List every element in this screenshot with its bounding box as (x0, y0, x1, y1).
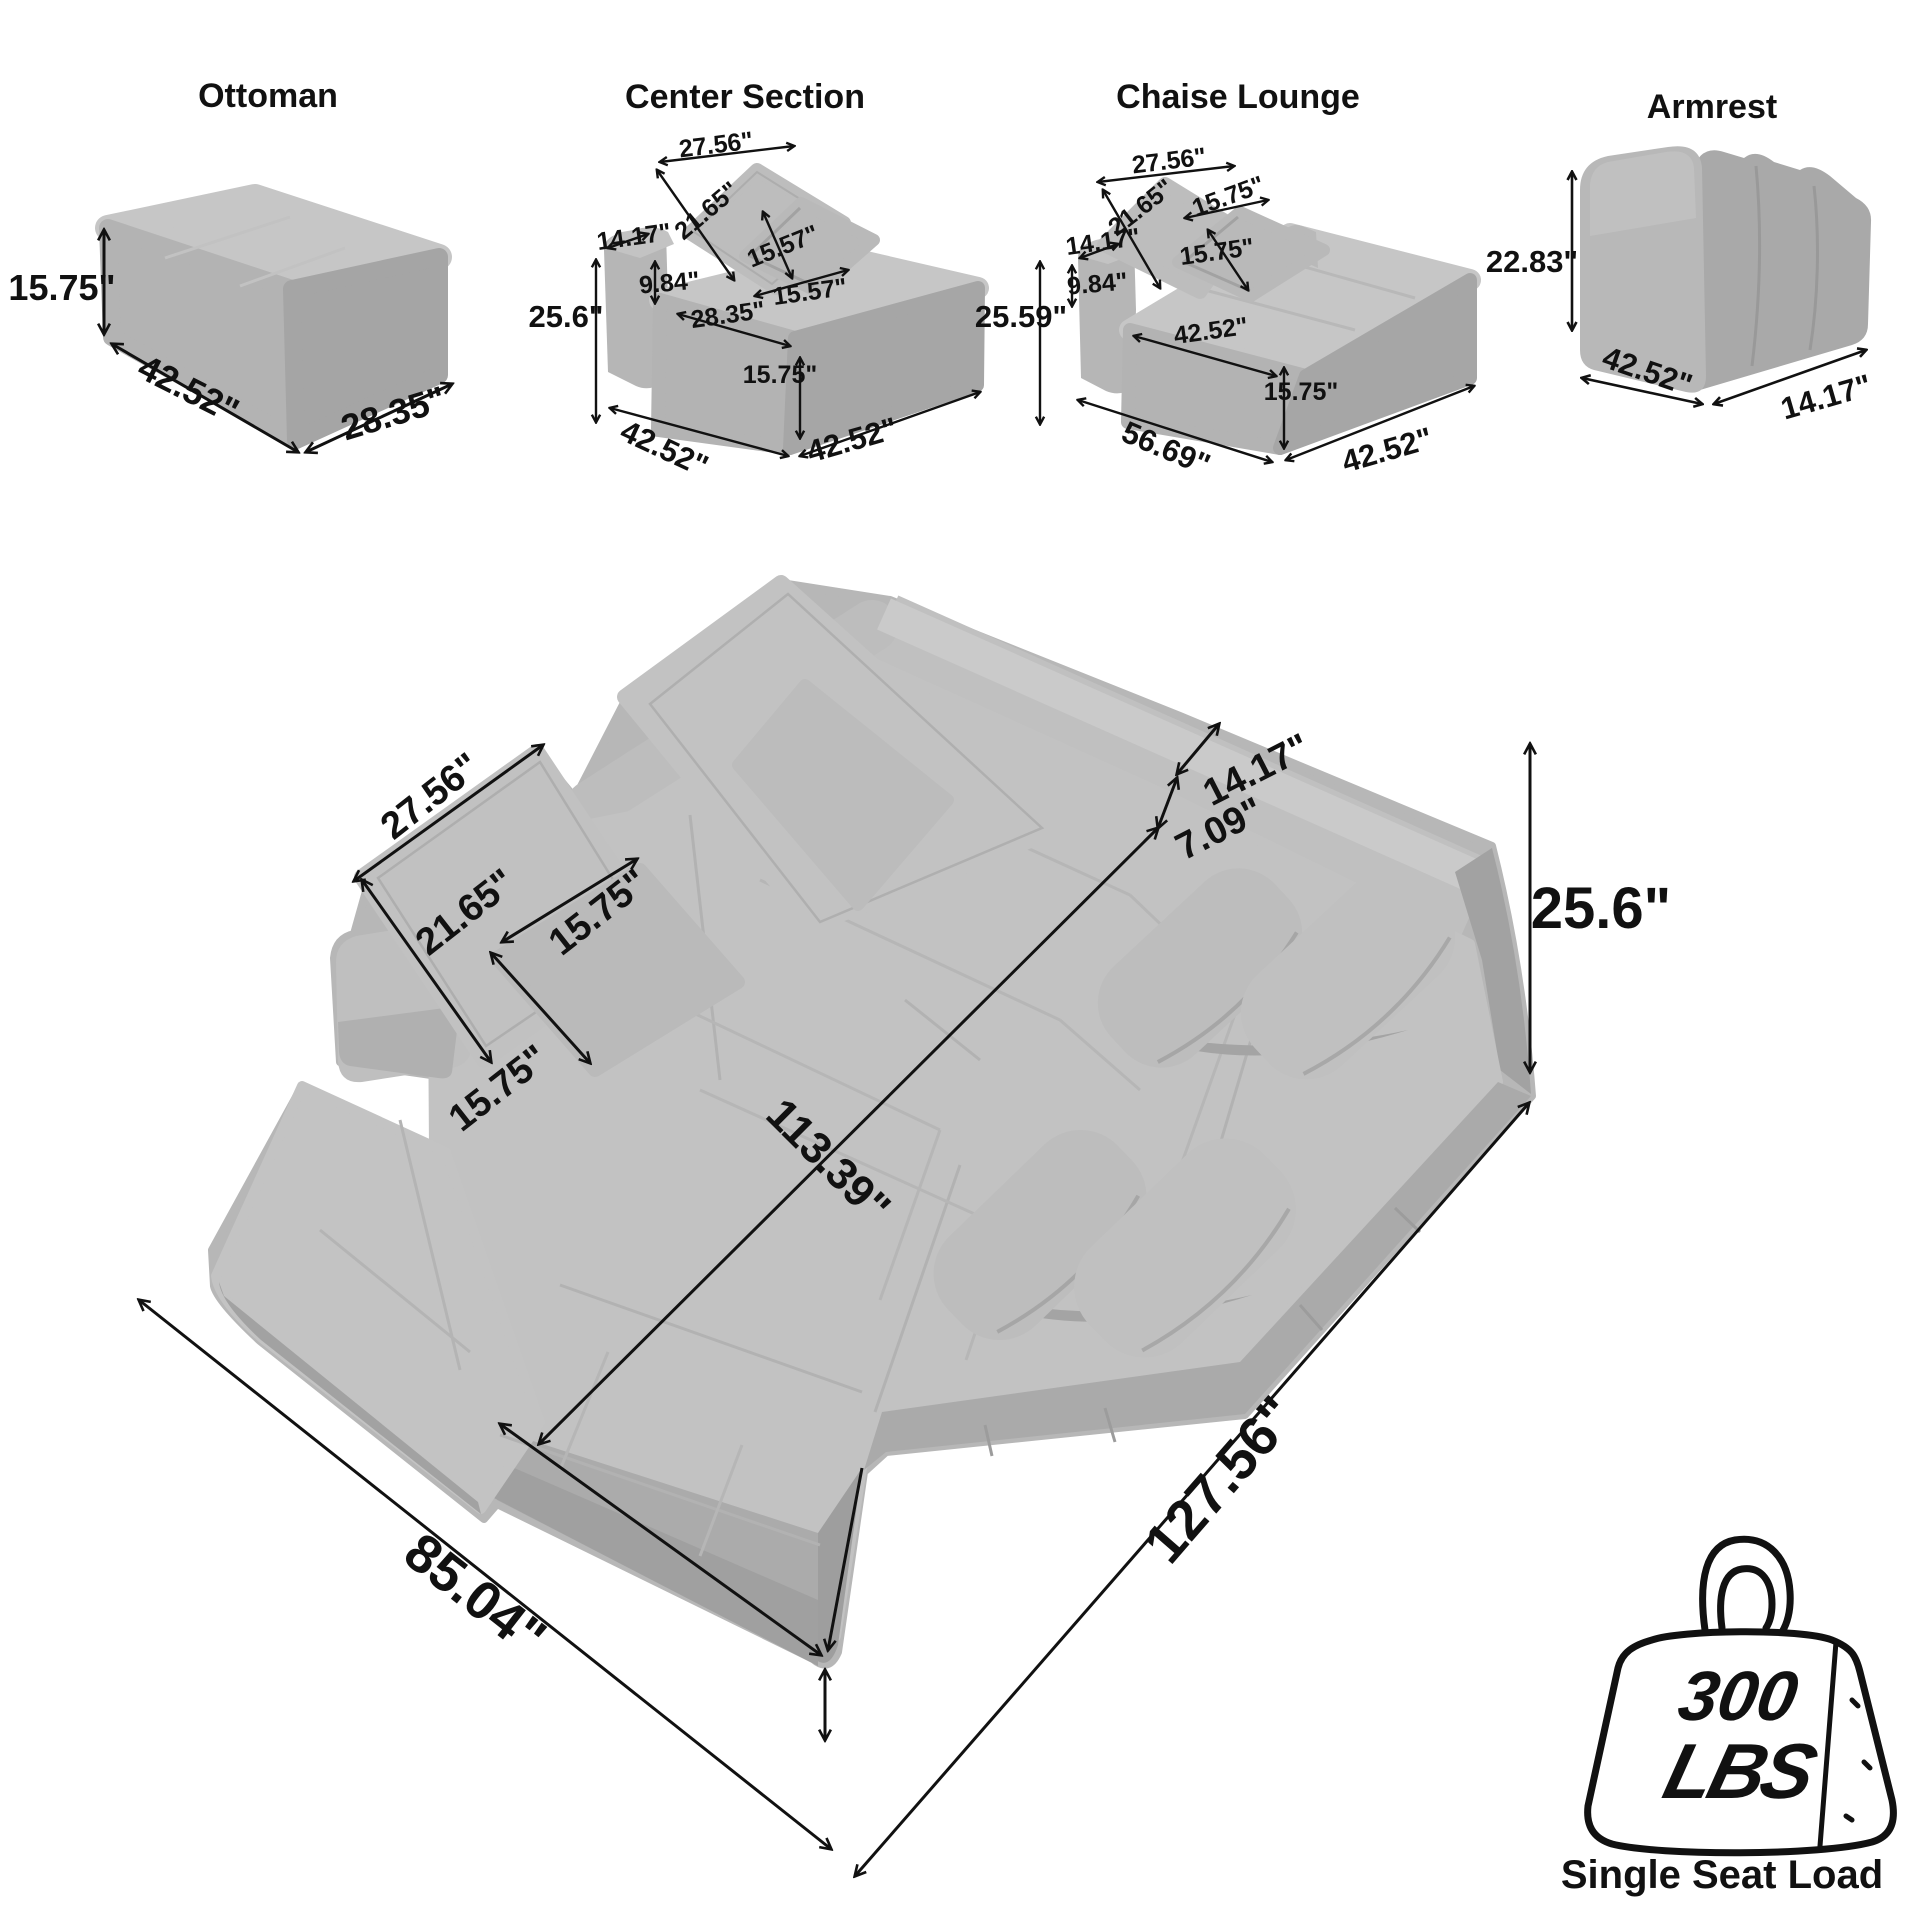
svg-text:15.75": 15.75" (743, 361, 817, 389)
svg-text:LBS: LBS (1656, 1727, 1825, 1815)
svg-text:300: 300 (1673, 1656, 1804, 1734)
svg-text:15.75": 15.75" (8, 267, 115, 308)
svg-text:25.6": 25.6" (1531, 876, 1671, 941)
svg-text:Chaise Lounge: Chaise Lounge (1116, 78, 1360, 116)
svg-text:25.6": 25.6" (528, 299, 603, 334)
svg-text:15.75": 15.75" (1264, 378, 1338, 406)
svg-text:Ottoman: Ottoman (198, 77, 338, 115)
svg-text:9.84": 9.84" (638, 266, 701, 299)
svg-text:Armrest: Armrest (1647, 88, 1777, 126)
svg-text:22.83": 22.83" (1486, 244, 1578, 279)
svg-text:25.59": 25.59" (975, 299, 1067, 334)
svg-text:Center Section: Center Section (625, 78, 865, 116)
svg-text:Single Seat Load: Single Seat Load (1561, 1853, 1883, 1897)
svg-text:9.84": 9.84" (1066, 267, 1129, 300)
